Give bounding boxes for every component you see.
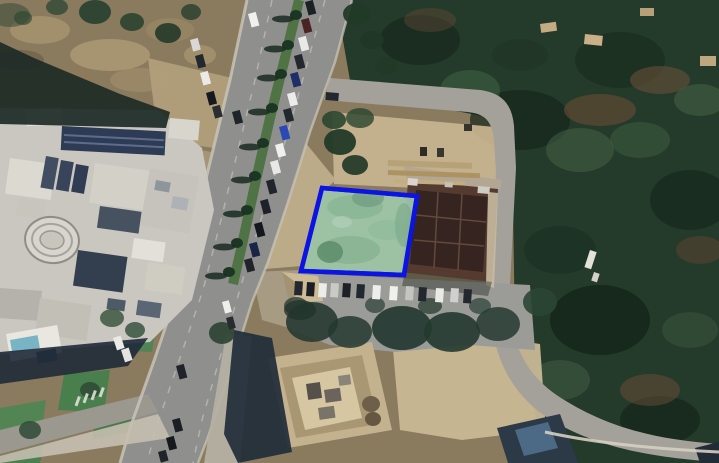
satellite-map-view[interactable] [0,0,719,463]
aerial-imagery-canvas [0,0,719,463]
brown-building-interior [410,190,488,272]
